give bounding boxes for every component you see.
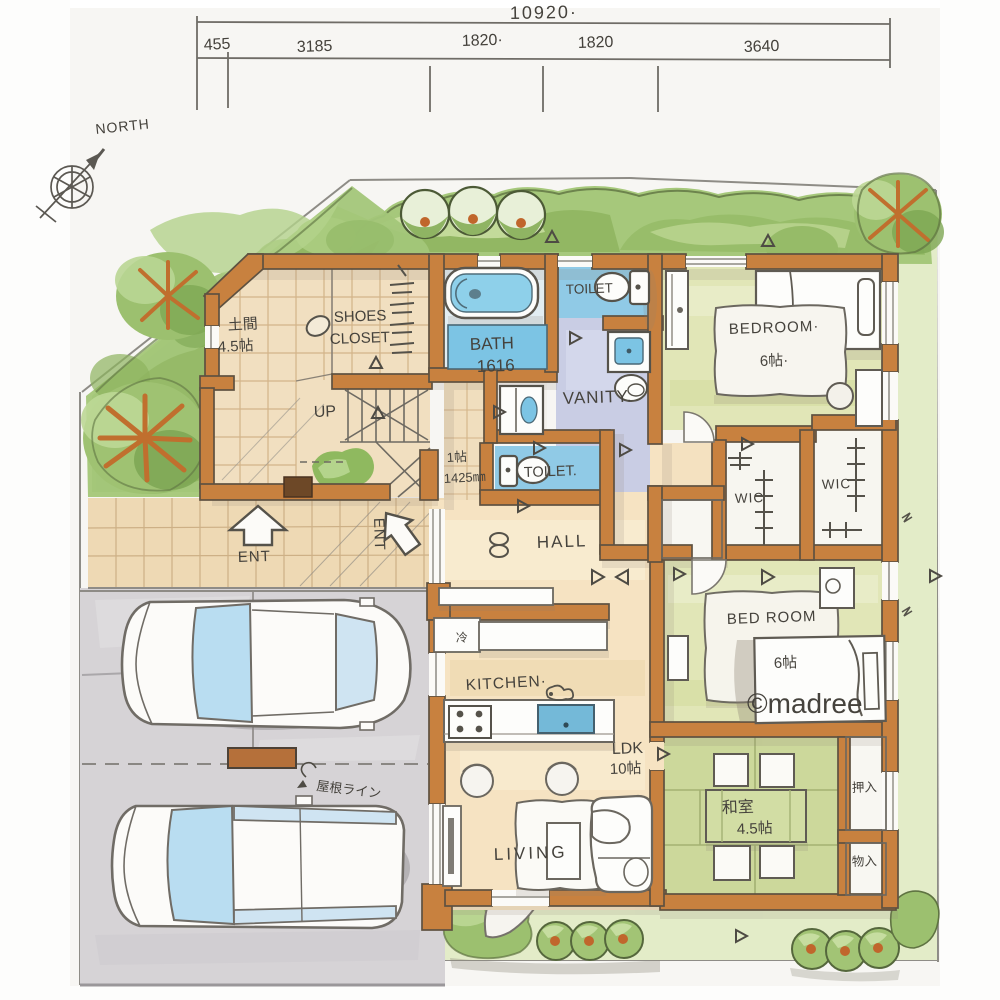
svg-text:©madree: ©madree bbox=[747, 688, 863, 719]
svg-text:10帖: 10帖 bbox=[610, 760, 642, 778]
svg-text:3640: 3640 bbox=[744, 38, 780, 56]
svg-text:ENT: ENT bbox=[238, 548, 272, 566]
svg-text:UP: UP bbox=[314, 403, 337, 421]
svg-text:土間: 土間 bbox=[227, 315, 258, 334]
svg-text:CLOSET: CLOSET bbox=[330, 329, 391, 348]
svg-text:1820·: 1820· bbox=[462, 32, 503, 50]
svg-text:BATH: BATH bbox=[469, 333, 514, 354]
svg-text:4.5帖: 4.5帖 bbox=[217, 337, 254, 356]
svg-text:1820: 1820 bbox=[578, 34, 614, 52]
svg-text:4.5帖: 4.5帖 bbox=[737, 820, 773, 838]
svg-text:和室: 和室 bbox=[722, 798, 755, 817]
svg-text:TOILET.: TOILET. bbox=[524, 463, 577, 481]
svg-text:10920·: 10920· bbox=[510, 2, 578, 23]
svg-text:VANITY.: VANITY. bbox=[562, 387, 632, 408]
svg-text:TOILET: TOILET bbox=[566, 280, 614, 297]
svg-text:HALL: HALL bbox=[536, 531, 587, 552]
svg-text:LDK: LDK bbox=[612, 740, 644, 758]
svg-text:6帖·: 6帖· bbox=[760, 352, 789, 370]
svg-text:ENT: ENT bbox=[370, 518, 388, 552]
svg-text:455: 455 bbox=[203, 36, 231, 54]
svg-text:6帖: 6帖 bbox=[774, 654, 798, 672]
svg-text:3185: 3185 bbox=[297, 38, 333, 56]
svg-text:物入: 物入 bbox=[852, 854, 878, 869]
svg-text:LIVING: LIVING bbox=[493, 842, 567, 864]
svg-text:1616: 1616 bbox=[476, 356, 514, 376]
svg-text:1帖: 1帖 bbox=[446, 449, 467, 465]
svg-text:BEDROOM·: BEDROOM· bbox=[729, 318, 820, 338]
svg-text:1425㎜: 1425㎜ bbox=[443, 469, 486, 486]
svg-text:WIC: WIC bbox=[822, 476, 852, 492]
svg-text:冷: 冷 bbox=[456, 631, 468, 645]
svg-text:SHOES: SHOES bbox=[334, 307, 387, 326]
svg-text:BED ROOM: BED ROOM bbox=[727, 608, 817, 628]
svg-text:WIC: WIC bbox=[735, 490, 765, 506]
svg-text:押入: 押入 bbox=[852, 780, 878, 795]
